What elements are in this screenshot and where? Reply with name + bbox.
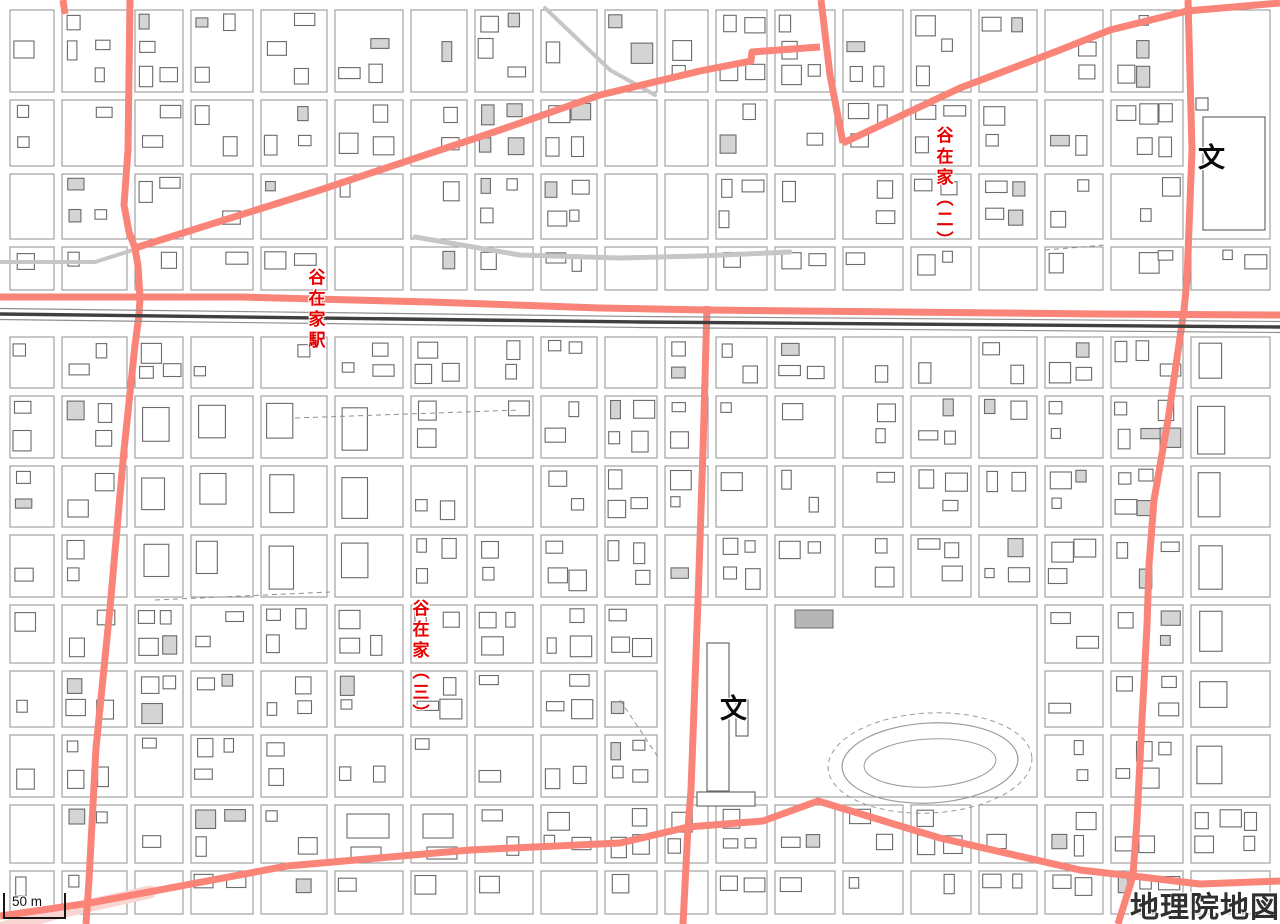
building: [416, 500, 428, 511]
building: [672, 367, 686, 378]
building: [479, 771, 501, 783]
building: [1053, 875, 1071, 888]
building: [338, 878, 356, 891]
building: [779, 366, 801, 376]
building: [69, 875, 79, 887]
city-block: [665, 174, 708, 239]
school-building: [736, 700, 748, 736]
path-dashed: [620, 700, 660, 760]
building: [609, 15, 622, 28]
building: [1141, 209, 1152, 222]
building: [143, 136, 163, 148]
building: [1012, 472, 1026, 491]
building: [138, 611, 154, 624]
building: [197, 678, 214, 690]
building: [633, 770, 648, 782]
building: [613, 766, 624, 778]
building: [1049, 363, 1070, 383]
building: [1076, 470, 1086, 482]
building: [985, 399, 995, 413]
building: [632, 809, 646, 826]
building: [1199, 546, 1222, 589]
building: [1162, 676, 1177, 687]
building: [1075, 878, 1092, 896]
building: [636, 570, 650, 584]
building: [224, 739, 233, 753]
building: [1200, 682, 1227, 708]
city-block: [541, 871, 597, 914]
building: [1013, 182, 1025, 196]
building: [1200, 611, 1222, 651]
city-block: [605, 174, 657, 239]
building: [342, 543, 368, 578]
building: [1163, 178, 1181, 197]
building: [1078, 180, 1089, 191]
building: [96, 812, 107, 823]
building: [296, 677, 312, 694]
city-block: [10, 100, 54, 166]
building: [140, 41, 155, 52]
building: [874, 66, 884, 87]
building: [1137, 138, 1152, 155]
building: [983, 874, 1001, 888]
building: [373, 365, 394, 376]
building: [481, 208, 493, 223]
city-block: [843, 174, 903, 239]
building: [481, 252, 496, 269]
building: [608, 500, 626, 517]
building: [919, 363, 931, 383]
building: [480, 876, 500, 893]
building: [608, 541, 619, 561]
path-dashed: [295, 410, 520, 418]
building: [70, 638, 85, 657]
building: [479, 676, 498, 685]
building: [569, 570, 586, 591]
building: [444, 678, 456, 696]
city-block: [716, 100, 767, 166]
building: [482, 637, 504, 655]
building: [68, 178, 84, 190]
building: [570, 609, 584, 623]
building: [572, 700, 593, 719]
building: [509, 401, 530, 416]
building: [163, 676, 176, 689]
building: [417, 569, 428, 584]
building: [719, 211, 729, 228]
building: [1137, 41, 1149, 58]
building: [807, 133, 823, 145]
building: [1116, 769, 1130, 779]
map-graphics: [0, 0, 1280, 924]
building: [744, 878, 765, 892]
building: [631, 43, 653, 63]
building: [944, 874, 954, 893]
building: [808, 65, 820, 77]
building: [547, 638, 556, 653]
building: [783, 181, 796, 201]
building: [143, 836, 161, 848]
building: [1076, 343, 1089, 357]
building: [723, 538, 738, 554]
path-dashed: [155, 592, 330, 600]
building: [941, 182, 957, 195]
city-block: [335, 871, 403, 914]
building: [295, 13, 315, 25]
building: [877, 472, 895, 482]
building: [199, 405, 226, 438]
building: [916, 137, 929, 153]
building: [67, 15, 80, 29]
building: [572, 499, 584, 510]
building: [1077, 636, 1099, 648]
building: [267, 703, 277, 716]
building: [847, 42, 865, 52]
building: [877, 834, 893, 849]
building: [546, 138, 559, 156]
city-block: [335, 735, 403, 797]
building: [1049, 703, 1071, 713]
building: [945, 543, 959, 558]
building: [1198, 473, 1220, 517]
building: [946, 473, 968, 491]
building: [917, 810, 933, 826]
building: [1198, 406, 1225, 454]
building: [67, 401, 84, 420]
school-building: [1203, 117, 1265, 230]
building: [545, 182, 557, 197]
building: [986, 181, 1008, 192]
city-block: [911, 871, 971, 914]
city-block: [775, 100, 835, 166]
building: [631, 498, 648, 509]
building: [267, 743, 284, 756]
building: [68, 568, 80, 581]
building: [13, 431, 31, 451]
building: [1137, 66, 1150, 87]
building: [546, 541, 563, 553]
building: [782, 837, 801, 847]
city-block: [62, 337, 127, 388]
building: [743, 104, 755, 120]
building: [417, 701, 438, 710]
building: [226, 612, 244, 622]
city-block: [843, 337, 903, 388]
city-block: [261, 871, 327, 914]
city-block: [62, 100, 127, 166]
building: [1161, 542, 1179, 551]
building: [444, 107, 458, 122]
building: [548, 211, 567, 226]
building: [1008, 539, 1023, 557]
building: [418, 429, 437, 448]
building: [671, 471, 692, 490]
building: [269, 546, 293, 589]
building: [442, 363, 459, 381]
building: [196, 810, 216, 829]
building: [548, 813, 570, 831]
building: [347, 814, 389, 838]
building: [780, 878, 801, 892]
building: [340, 676, 354, 695]
building: [549, 341, 561, 351]
building: [373, 105, 387, 122]
building: [724, 15, 737, 31]
building: [18, 137, 29, 148]
building: [806, 835, 819, 848]
building: [1117, 106, 1136, 121]
building: [479, 612, 496, 628]
park-boundary: [826, 708, 1035, 819]
building: [163, 636, 177, 654]
building: [982, 17, 1001, 31]
building: [419, 401, 437, 420]
building: [68, 252, 79, 266]
building: [547, 702, 564, 711]
building: [267, 609, 281, 620]
city-block: [475, 466, 533, 527]
map-canvas[interactable]: 谷在家駅 谷在家（二） 谷在家（三） 文 文 地理院地図 50 m: [0, 0, 1280, 924]
building: [200, 474, 226, 505]
building: [507, 341, 520, 360]
building: [548, 568, 567, 583]
building: [546, 42, 559, 63]
city-block: [10, 535, 54, 597]
building: [1161, 636, 1171, 646]
building: [13, 344, 25, 356]
building: [722, 344, 732, 357]
building: [267, 635, 280, 653]
building: [1052, 498, 1061, 508]
building: [1158, 251, 1173, 260]
building: [1136, 341, 1149, 361]
left-street-south: [86, 248, 140, 924]
building: [508, 67, 526, 77]
building: [139, 638, 158, 655]
building: [742, 180, 764, 192]
building: [196, 18, 208, 27]
building: [1074, 741, 1083, 755]
building: [298, 345, 310, 357]
building: [342, 408, 367, 450]
building: [569, 402, 579, 417]
building: [612, 637, 630, 652]
city-block: [191, 337, 253, 388]
building: [1141, 429, 1161, 439]
city-block: [411, 10, 467, 92]
building: [1244, 836, 1255, 850]
building: [1195, 813, 1208, 829]
building: [720, 135, 736, 153]
attribution-link[interactable]: 地理院地図: [1130, 884, 1280, 924]
building: [1052, 542, 1074, 562]
building: [160, 105, 181, 117]
building: [96, 107, 112, 117]
building: [139, 182, 152, 203]
building: [69, 364, 89, 375]
building: [96, 344, 107, 358]
school-building: [697, 792, 755, 806]
school-building: [707, 643, 729, 791]
building: [195, 769, 213, 779]
city-block: [335, 247, 403, 290]
building: [782, 65, 802, 84]
building: [1049, 402, 1062, 414]
north-vertical-road: [821, 0, 843, 143]
building: [1079, 65, 1095, 79]
city-block: [411, 247, 467, 290]
building: [226, 252, 248, 264]
building: [722, 179, 732, 197]
building: [668, 839, 680, 853]
building: [875, 567, 894, 587]
building: [339, 133, 358, 153]
building: [507, 104, 522, 117]
city-block: [475, 337, 533, 388]
school-building: [1196, 98, 1208, 110]
city-block: [605, 337, 657, 388]
building: [1159, 742, 1171, 755]
building: [339, 68, 360, 79]
building: [1117, 677, 1133, 691]
building: [942, 39, 953, 51]
building: [371, 636, 382, 656]
building: [779, 15, 790, 32]
building: [943, 500, 958, 510]
building: [339, 610, 360, 628]
building: [986, 135, 998, 147]
city-block: [411, 466, 467, 527]
building: [987, 471, 998, 491]
building: [96, 431, 112, 447]
building: [1195, 836, 1214, 853]
park-track-oval: [840, 718, 1020, 807]
building: [415, 876, 436, 895]
building: [1159, 104, 1172, 122]
city-block: [605, 247, 657, 290]
building: [1115, 402, 1127, 415]
building: [743, 366, 757, 383]
city-block: [10, 671, 54, 727]
building: [1115, 341, 1127, 361]
building: [986, 208, 1004, 219]
building: [1139, 469, 1153, 481]
building: [508, 13, 519, 27]
building: [160, 177, 180, 188]
building: [570, 210, 579, 221]
building: [423, 814, 453, 838]
building: [506, 612, 515, 627]
building: [634, 400, 655, 418]
building: [267, 403, 293, 438]
building: [1008, 568, 1029, 582]
building: [95, 210, 107, 220]
building: [809, 254, 826, 266]
building: [98, 404, 111, 423]
building: [1051, 429, 1060, 439]
building: [570, 636, 591, 657]
building: [1013, 874, 1022, 888]
city-block: [10, 805, 54, 863]
city-block: [261, 337, 327, 388]
building: [672, 342, 686, 356]
building: [1223, 250, 1232, 259]
building: [919, 470, 934, 488]
building: [140, 367, 154, 379]
building: [298, 701, 312, 714]
building: [1220, 810, 1241, 827]
building: [875, 539, 887, 553]
building: [916, 16, 936, 36]
building: [745, 18, 765, 33]
building: [294, 69, 308, 85]
building: [483, 567, 494, 580]
building: [1118, 429, 1130, 449]
city-block: [605, 100, 657, 166]
building: [723, 839, 737, 848]
building: [442, 42, 452, 62]
city-block: [10, 174, 54, 239]
building: [443, 612, 459, 627]
building: [942, 566, 962, 581]
building: [671, 568, 688, 578]
building: [224, 14, 236, 31]
building: [342, 478, 368, 519]
building: [14, 41, 34, 58]
feature-layer: [665, 10, 1270, 818]
building: [545, 769, 559, 789]
scale-bar-label: 50 m: [12, 894, 42, 909]
building: [373, 343, 389, 356]
building: [809, 497, 818, 512]
building: [1048, 569, 1067, 584]
building: [795, 610, 833, 628]
building: [1076, 367, 1092, 380]
city-block: [475, 735, 533, 797]
building: [442, 539, 456, 559]
scale-bar: 50 m: [3, 893, 66, 919]
building: [745, 838, 756, 848]
building: [611, 401, 621, 419]
building: [876, 429, 885, 443]
building: [482, 542, 499, 559]
building: [612, 875, 629, 893]
building: [918, 539, 940, 549]
building: [1119, 473, 1131, 484]
building: [269, 769, 284, 786]
building: [570, 675, 589, 687]
diagonal-road-west: [135, 47, 820, 248]
building: [342, 363, 354, 372]
center-vertical-street: [683, 306, 707, 924]
building: [918, 255, 935, 275]
building: [222, 674, 233, 686]
building: [440, 699, 462, 719]
building: [572, 180, 589, 194]
top-left-stub: [63, 0, 65, 14]
building: [1011, 365, 1024, 384]
building: [144, 544, 169, 576]
city-block: [911, 396, 971, 458]
building: [143, 408, 170, 442]
building: [1011, 401, 1027, 419]
city-block: [979, 247, 1037, 290]
building: [482, 105, 494, 125]
building: [373, 137, 394, 155]
building: [1051, 211, 1066, 227]
building: [195, 67, 209, 82]
building: [983, 343, 1000, 355]
